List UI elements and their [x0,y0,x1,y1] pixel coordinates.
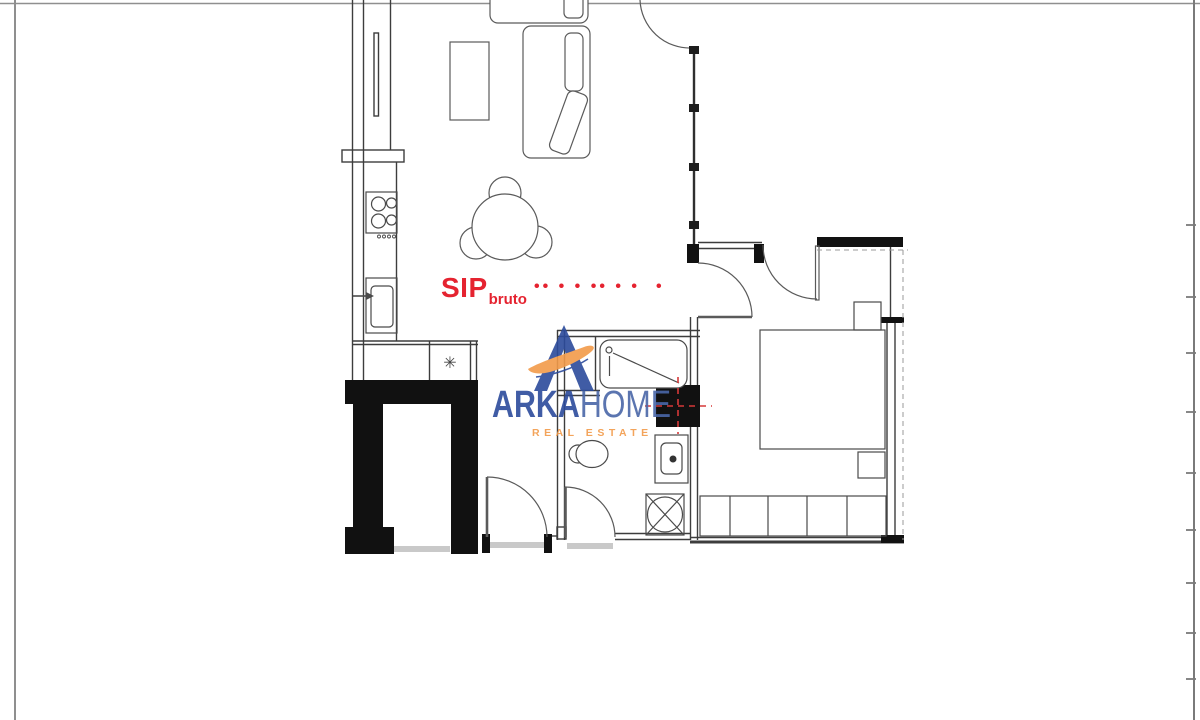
entry-door-post-right [544,534,552,553]
bedroom [700,302,886,536]
terrace-door [763,245,819,300]
living-room [450,0,590,158]
wall-post-a [687,244,699,263]
brand-tagline: REAL ESTATE [532,427,653,439]
coffee-table [450,42,489,120]
bath-threshold [567,543,613,549]
dining-table [472,194,538,260]
hall-door [698,263,752,317]
area-label-dots: •• • • •• • • [534,278,640,295]
railing-post [689,163,699,171]
entry-door [487,477,547,537]
window-left [374,33,379,116]
floor-plan-page: ✳ SIPbruto•• • • •• • •• ARKAHOME REAL E… [0,0,1200,720]
thresholds [394,542,613,552]
faucet-icon [366,292,374,300]
dining-set [460,177,552,260]
elevator-threshold [394,546,450,552]
window-cap-top [881,317,904,323]
wardrobe [700,496,886,536]
arkahome-watermark: ARKAHOME REAL ESTATE [488,320,678,445]
brand-name: ARKAHOME [492,384,671,428]
bed [760,330,885,449]
sofa-cushion [564,0,583,18]
core-wall-bottom-left [345,527,394,554]
shower [646,494,684,535]
balcony-door-top [640,0,692,48]
kitchen [353,192,397,333]
core-wall-top [345,380,478,404]
brand-name-home: HOME [580,384,671,426]
stove [366,192,397,238]
walls-thin [342,0,904,542]
area-label-main: SIP [441,272,488,303]
entry-threshold [490,542,544,548]
nightstand [854,302,881,330]
stove-knobs [378,235,396,238]
bedroom-top-wall [817,237,903,247]
kitchen-sink [353,278,397,333]
sofa-cushion [565,33,583,91]
core-wall-right [451,404,478,554]
railing-post [689,46,699,54]
window-sill [342,150,404,162]
area-label-subscript: bruto [489,291,527,308]
bathroom-door [565,487,615,537]
core-wall-left [353,404,383,527]
railing-post [689,221,699,229]
brand-name-arka: ARKA [492,384,580,426]
area-label: SIPbruto•• • • •• • •• [441,274,662,302]
railing-post [689,104,699,112]
area-label-trailing-dot: • [656,278,662,295]
boiler-symbol: ✳ [443,353,456,372]
balcony-railing [689,46,699,244]
nightstand [858,452,885,478]
